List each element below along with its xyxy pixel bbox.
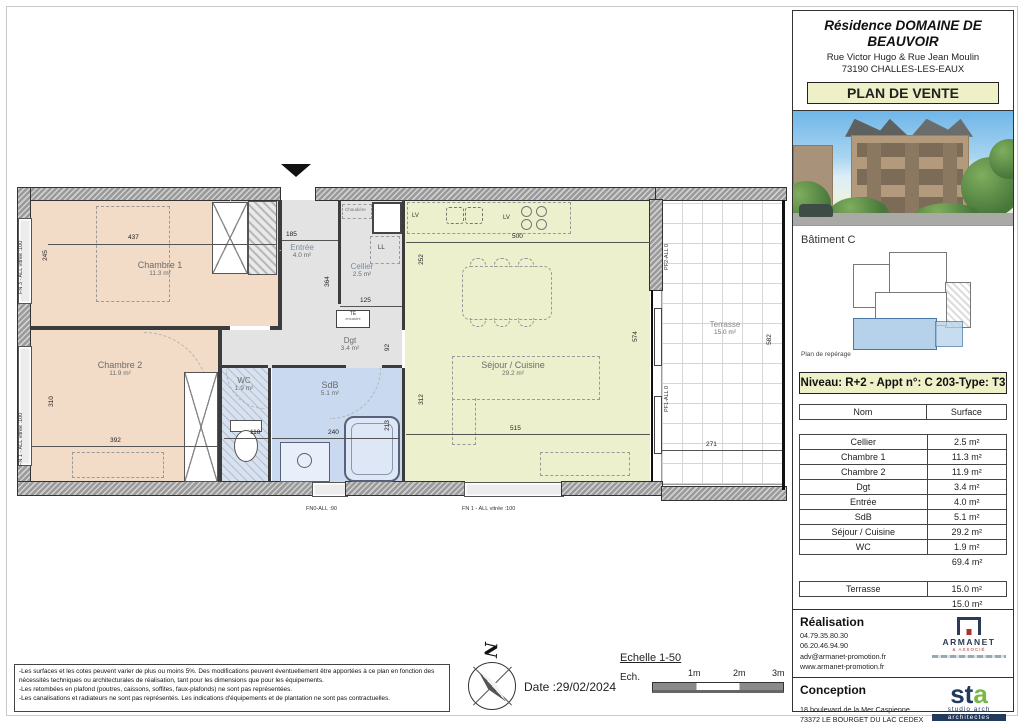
dim-label: 392	[110, 437, 121, 444]
chair	[518, 258, 534, 267]
dim-label: 245	[42, 250, 49, 261]
dim-label: 92	[384, 344, 391, 351]
dim-label: 252	[418, 254, 425, 265]
label-chambre1: Chambre 1 11.3 m²	[100, 260, 220, 278]
dim-label: 271	[706, 441, 717, 448]
partition	[218, 330, 222, 482]
realisation-website: www.armanet-promotion.fr	[800, 662, 932, 672]
surface-total-row: 69.4 m²	[799, 557, 1007, 567]
kitchen-counter	[407, 202, 571, 234]
kitchen-sink2	[465, 207, 483, 224]
tv-cabinet	[540, 452, 630, 476]
table-row: Terrasse 15.0 m²	[800, 581, 1007, 596]
label-entree: Entrée 4.0 m²	[272, 243, 332, 260]
scale-title: Echelle 1-50	[620, 652, 681, 664]
realisation-title: Réalisation	[800, 615, 932, 629]
hob-burner	[536, 206, 547, 217]
window-tag: FN0-ALL :90	[306, 506, 337, 512]
realisation-email: adv@armanet-promotion.fr	[800, 652, 932, 662]
label-terrasse: Terrasse 15.0 m²	[690, 320, 760, 337]
wall	[316, 188, 656, 200]
armanet-arch-icon	[957, 617, 981, 635]
armanet-rule	[932, 655, 1006, 658]
terrace-table: Terrasse 15.0 m²	[799, 581, 1007, 597]
dishwasher-label: LV	[412, 213, 419, 219]
compass-icon	[468, 662, 516, 710]
dim-line	[662, 450, 782, 451]
table-row: Séjour / Cuisine29.2 m²	[800, 524, 1007, 539]
building-photo	[793, 111, 1013, 225]
electrical-panel: TE encastré	[336, 310, 370, 328]
project-title: Résidence DOMAINE DE BEAUVOIR	[799, 18, 1007, 49]
scale-mark-3m: 3m	[772, 668, 785, 678]
project-address-1: Rue Victor Hugo & Rue Jean Moulin	[799, 52, 1007, 64]
terrace-total: 15.0 m²	[927, 599, 1007, 609]
title-block-panel: Résidence DOMAINE DE BEAUVOIR Rue Victor…	[792, 10, 1014, 712]
dim-label: 240	[328, 429, 339, 436]
bathtub	[344, 416, 400, 482]
partition	[222, 365, 268, 368]
window-sdb	[312, 482, 348, 497]
conception-title: Conception	[800, 683, 932, 697]
scale-bar	[652, 682, 784, 693]
col-nom: Nom	[800, 404, 927, 419]
wall-terrace-l	[650, 200, 662, 290]
apartment-info-badge: Niveau: R+2 - Appt n°: C 203-Type: T3	[799, 372, 1007, 394]
table-row: Cellier2.5 m²	[800, 434, 1007, 449]
project-header: Résidence DOMAINE DE BEAUVOIR Rue Victor…	[793, 11, 1013, 111]
partition	[270, 326, 282, 330]
window-tag: FN 1 - ALL vitrée :100	[462, 506, 515, 512]
realisation-phone2: 06.20.46.94.90	[800, 641, 932, 651]
dim-label: 574	[632, 331, 639, 342]
dim-label: 515	[510, 425, 521, 432]
wall	[662, 487, 786, 500]
legal-notes: -Les surfaces et les cotes peuvent varie…	[14, 664, 450, 712]
dim-label: 312	[418, 394, 425, 405]
terrace-railing	[782, 200, 785, 490]
dim-line	[406, 242, 650, 243]
label-cellier: Cellier 2.5 m²	[332, 262, 392, 279]
partition	[338, 200, 341, 304]
bed-chambre1	[96, 206, 170, 302]
dim-label: 185	[286, 231, 297, 238]
glass-wall-terrace	[651, 290, 653, 482]
entrance-arrow-icon	[281, 164, 311, 177]
room-terrasse	[662, 200, 782, 484]
hob-burner	[521, 206, 532, 217]
window-sejour	[464, 482, 564, 497]
dim-label: 437	[128, 234, 139, 241]
dim-label: 500	[512, 233, 523, 240]
label-chambre2: Chambre 2 11.9 m²	[60, 360, 180, 378]
partition	[402, 200, 405, 330]
reperage-caption: Plan de repérage	[801, 351, 851, 358]
dim-line	[340, 306, 402, 307]
chair	[494, 258, 510, 267]
door-tag: PF1-ALL 0	[664, 378, 670, 412]
table-row: WC1.9 m²	[800, 539, 1007, 554]
label-wc: WC 1.9 m²	[218, 376, 270, 393]
terrace-door-leaf	[654, 396, 662, 454]
dim-line	[32, 446, 218, 447]
washer-box	[370, 236, 400, 264]
hob-burner	[521, 219, 532, 230]
surface-table-body: Cellier2.5 m² Chambre 111.3 m² Chambre 2…	[799, 434, 1007, 555]
boiler-unit	[372, 202, 402, 234]
kitchen-sink	[446, 207, 464, 224]
door-tag: PF2-ALL 0	[664, 236, 670, 270]
washer-label: LL	[378, 245, 385, 251]
photo-car	[799, 204, 833, 217]
terrace-door-leaf	[654, 308, 662, 366]
mini-plan-highlight	[935, 321, 963, 347]
note-line: -Les canalisations et radiateurs ne sont…	[19, 695, 445, 704]
wardrobe-chambre2	[184, 372, 218, 482]
terrace-total-row: 15.0 m²	[799, 599, 1007, 609]
batiment-label: Bâtiment C	[801, 234, 855, 246]
te-label2: encastré	[337, 317, 369, 321]
dim-label: 213	[384, 420, 391, 431]
realisation-phone1: 04.79.35.80.30	[800, 631, 932, 641]
wall	[656, 188, 786, 200]
scale-mark-1m: 1m	[688, 668, 701, 678]
project-address-2: 73190 CHALLES-LES-EAUX	[799, 64, 1007, 76]
dim-label: 125	[360, 297, 371, 304]
table-row: Dgt3.4 m²	[800, 479, 1007, 494]
chair	[470, 258, 486, 267]
label-dgt: Dgt 3.4 m²	[322, 336, 378, 353]
wall	[562, 482, 662, 495]
conception-section: Conception 18 boulevard de la Mer Caspie…	[793, 677, 1013, 724]
plan-de-vente-badge: PLAN DE VENTE	[807, 82, 999, 104]
realisation-section: Réalisation 04.79.35.80.30 06.20.46.94.9…	[793, 609, 1013, 677]
armanet-logo: ARMANET & ASSOCIÉ	[932, 615, 1006, 673]
floor-plan: LL Chaudière TE encastré LV LV	[0, 0, 790, 560]
dim-label: 310	[48, 396, 55, 407]
surface-total: 69.4 m²	[927, 557, 1007, 567]
sink-sdb	[280, 442, 330, 482]
mini-plan	[839, 250, 969, 350]
dining-table	[462, 266, 552, 320]
col-surface: Surface	[926, 404, 1006, 419]
label-sejour: Séjour / Cuisine 29.2 m²	[448, 360, 578, 378]
dim-label: 364	[324, 276, 331, 287]
desk-chambre2	[72, 452, 164, 478]
date-label: Date :29/02/2024	[524, 680, 616, 694]
window-tag: FN 1 - ALL vitrée :100	[18, 396, 24, 466]
dim-line	[272, 438, 400, 439]
dishwasher2-label: LV	[503, 215, 510, 221]
sta-logo: sta studio arch architectes	[932, 683, 1006, 724]
reperage-section: Bâtiment C Plan de repérage	[793, 225, 1013, 364]
dim-line	[406, 434, 650, 435]
plan-de-vente-sheet: LL Chaudière TE encastré LV LV	[0, 0, 1024, 724]
dim-line	[224, 438, 268, 439]
partition	[382, 365, 402, 368]
table-row: SdB5.1 m²	[800, 509, 1007, 524]
partition	[30, 326, 230, 330]
conception-address1: 18 boulevard de la Mer Caspienne	[800, 705, 932, 715]
dim-line	[48, 244, 276, 245]
scale-mark-2m: 2m	[733, 668, 746, 678]
partition	[402, 368, 405, 482]
wall	[346, 482, 464, 495]
chaudiere-label: Chaudière	[345, 207, 366, 212]
window-tag: FN 3 - ALL vitrée :100	[18, 224, 24, 294]
surface-table: Nom Surface Cellier2.5 m² Chambre 111.3 …	[799, 404, 1007, 609]
label-sdb: SdB 5.1 m²	[300, 380, 360, 398]
wall	[18, 482, 312, 495]
dim-label: 110	[250, 429, 260, 436]
dim-line	[282, 240, 338, 241]
table-row: Chambre 111.3 m²	[800, 449, 1007, 464]
surface-table-header: Nom Surface	[799, 404, 1007, 420]
wall	[30, 188, 280, 200]
hob-burner	[536, 219, 547, 230]
mini-plan-highlight	[853, 318, 937, 350]
table-row: Chambre 211.9 m²	[800, 464, 1007, 479]
note-line: -Les surfaces et les cotes peuvent varie…	[19, 668, 445, 686]
sofa-return	[452, 398, 476, 445]
dim-label: 582	[766, 334, 773, 345]
north-letter: N	[480, 642, 501, 658]
duct-shaft	[249, 202, 276, 274]
note-line: -Les retombées en plafond (poutres, cais…	[19, 686, 445, 695]
conception-address2: 73372 LE BOURGET DU LAC CEDEX	[800, 715, 932, 724]
scale-ech-label: Ech.	[620, 672, 640, 683]
table-row: Entrée4.0 m²	[800, 494, 1007, 509]
